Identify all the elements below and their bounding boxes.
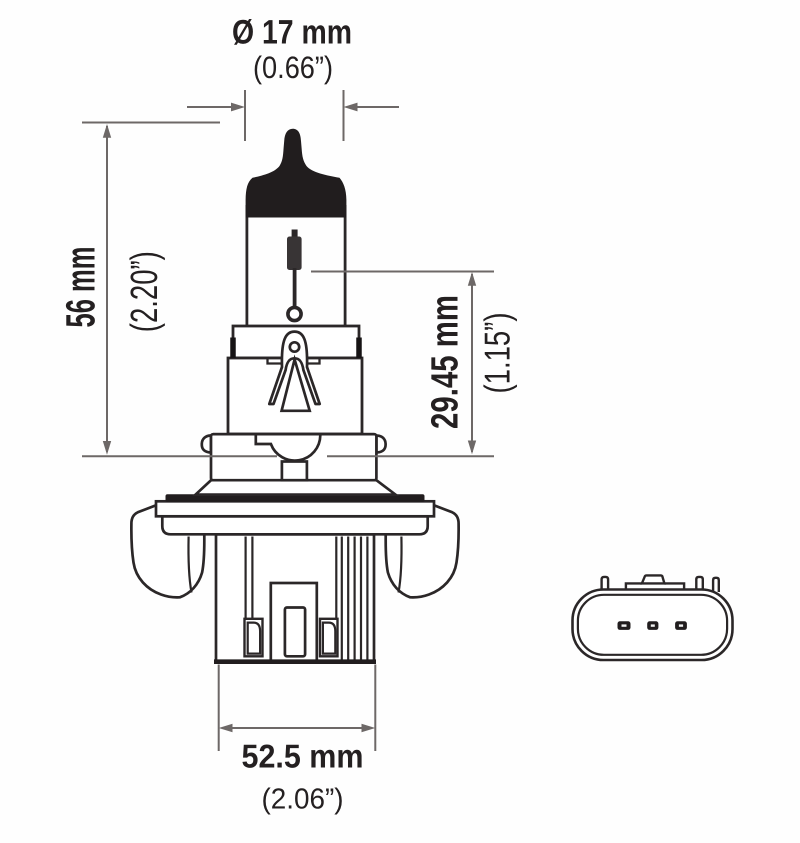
svg-text:56 mm: 56 mm xyxy=(58,247,104,328)
svg-text:Ø 17 mm: Ø 17 mm xyxy=(232,14,352,52)
svg-text:(2.20”): (2.20”) xyxy=(124,251,166,332)
svg-text:(1.15”): (1.15”) xyxy=(477,313,518,394)
svg-text:(2.06”): (2.06”) xyxy=(262,784,344,816)
svg-text:(0.66”): (0.66”) xyxy=(253,50,333,85)
svg-text:29.45 mm: 29.45 mm xyxy=(425,295,467,429)
svg-text:52.5 mm: 52.5 mm xyxy=(242,738,364,775)
